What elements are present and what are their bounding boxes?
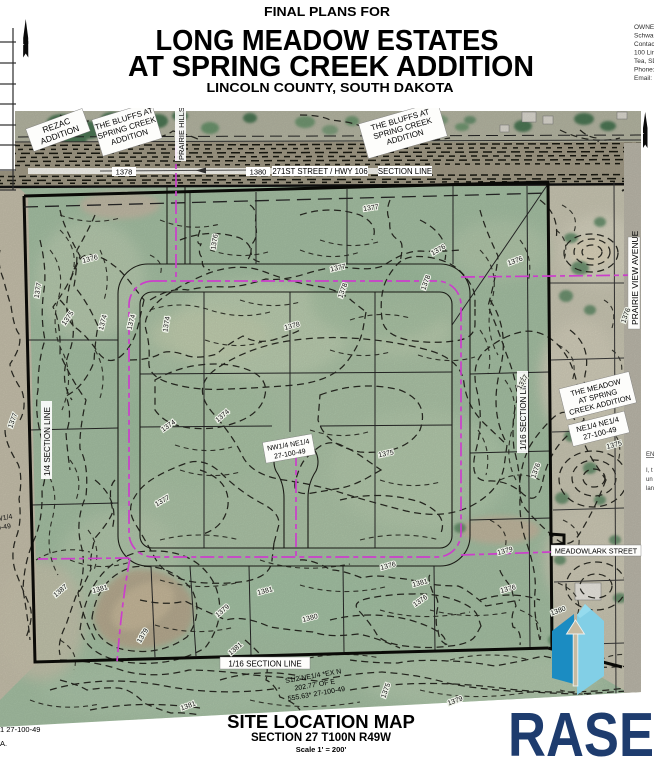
- svg-text:1 27-100-49: 1 27-100-49: [0, 725, 40, 734]
- svg-text:Schwartz Pro: Schwartz Pro: [634, 33, 654, 40]
- svg-text:1/4 SECTION LINE: 1/4 SECTION LINE: [43, 407, 52, 476]
- svg-text:RASE: RASE: [508, 701, 654, 758]
- svg-text:271ST STREET / HWY 106: 271ST STREET / HWY 106: [272, 167, 367, 176]
- svg-text:A.: A.: [0, 739, 7, 748]
- svg-text:SITE LOCATION MAP: SITE LOCATION MAP: [227, 711, 415, 732]
- svg-text:1/16 SECTION LINE: 1/16 SECTION LINE: [228, 660, 301, 669]
- svg-text:OWNER & DE: OWNER & DE: [634, 24, 654, 31]
- svg-text:1378: 1378: [116, 168, 133, 177]
- svg-text:I, t: I, t: [646, 468, 653, 474]
- svg-text:100 Lincoln A: 100 Lincoln A: [634, 50, 654, 57]
- svg-text:Contact: Mar: Contact: Mar: [634, 41, 654, 48]
- svg-text:Email: schwa: Email: schwa: [634, 75, 654, 82]
- svg-text:EN: EN: [646, 452, 654, 458]
- svg-text:1380: 1380: [250, 168, 267, 177]
- svg-text:LINCOLN COUNTY, SOUTH DAKOTA: LINCOLN COUNTY, SOUTH DAKOTA: [207, 81, 454, 95]
- svg-text:FINAL PLANS FOR: FINAL PLANS FOR: [264, 5, 390, 19]
- svg-text:SECTION 27 T100N R49W: SECTION 27 T100N R49W: [251, 732, 391, 744]
- svg-text:Phone: (605): Phone: (605): [634, 67, 654, 74]
- svg-text:SECTION LINE: SECTION LINE: [378, 167, 432, 176]
- svg-text:lan: lan: [646, 486, 654, 492]
- svg-text:MEADOWLARK STREET: MEADOWLARK STREET: [555, 547, 638, 556]
- svg-text:AT SPRING CREEK ADDITION: AT SPRING CREEK ADDITION: [128, 51, 534, 83]
- svg-text:Scale 1' = 200': Scale 1' = 200': [296, 745, 347, 754]
- svg-text:un: un: [646, 477, 653, 483]
- svg-text:Tea, SD 5706: Tea, SD 5706: [634, 58, 654, 65]
